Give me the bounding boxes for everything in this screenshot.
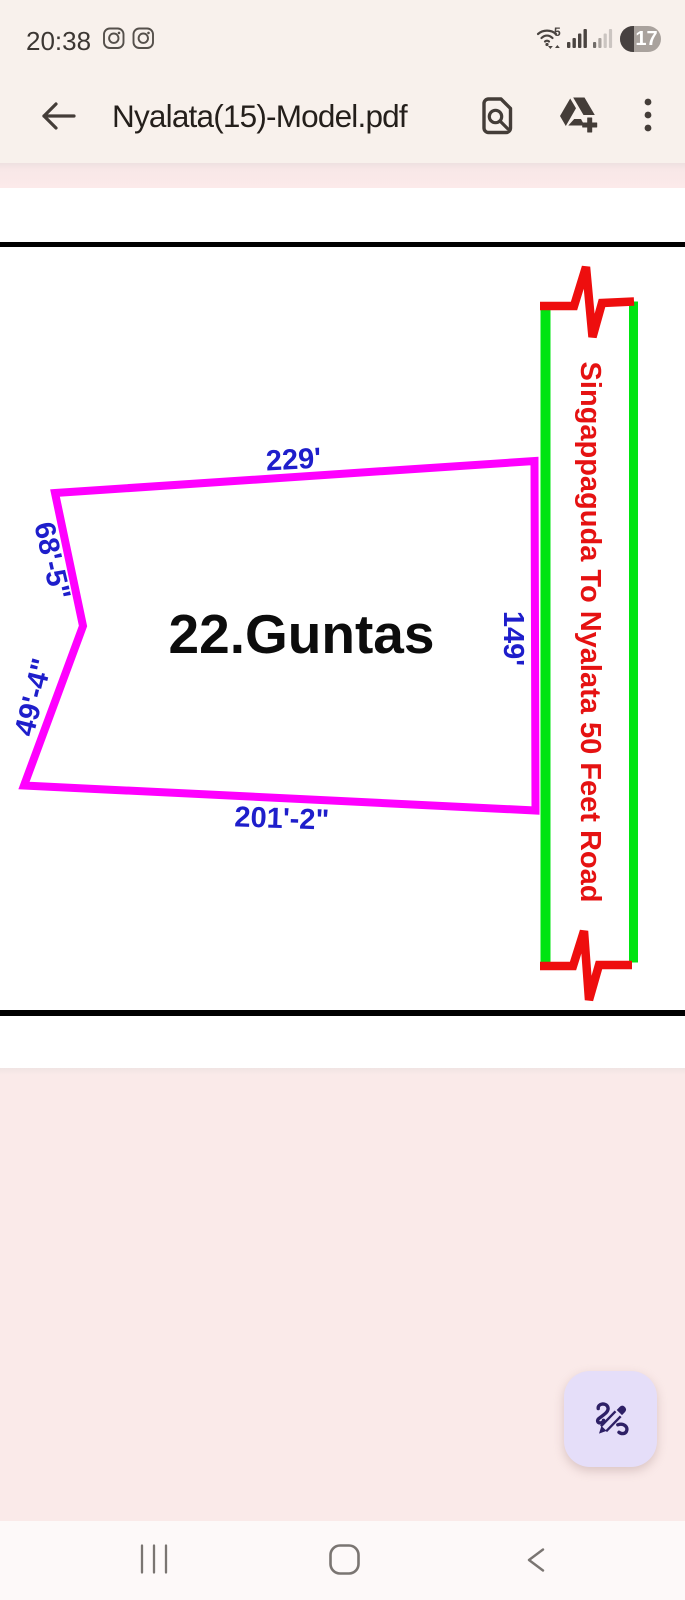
svg-text:149': 149' bbox=[497, 611, 529, 666]
svg-text:68'-5": 68'-5" bbox=[27, 519, 76, 603]
svg-text:49'-4": 49'-4" bbox=[9, 655, 59, 739]
svg-text:229': 229' bbox=[265, 443, 322, 478]
svg-text:201'-2": 201'-2" bbox=[234, 801, 330, 836]
svg-text:Singappaguda To Nyalata 50 Fee: Singappaguda To Nyalata 50 Feet Road bbox=[574, 362, 606, 903]
svg-text:22.Guntas: 22.Guntas bbox=[169, 603, 435, 665]
svg-text:5: 5 bbox=[554, 25, 561, 39]
